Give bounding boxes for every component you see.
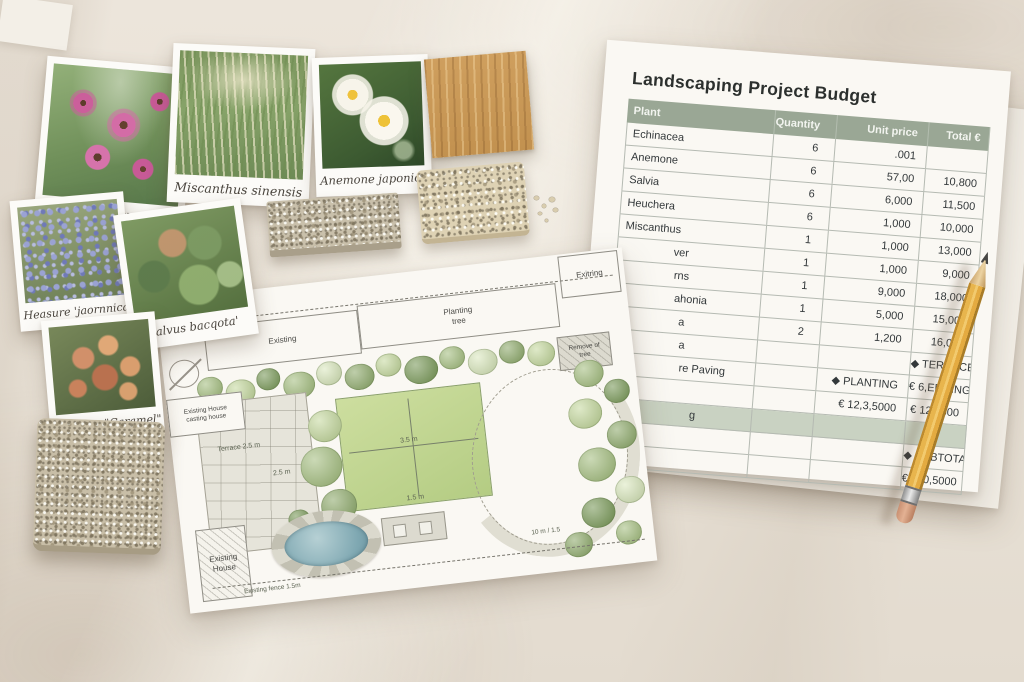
- planting-blob: [255, 367, 281, 392]
- exitring-box: Exitring: [557, 250, 621, 299]
- pencil-lead: [980, 251, 991, 265]
- structure-detail: [393, 524, 407, 538]
- planting-blob: [374, 352, 402, 378]
- plant-card-heasure: Heasure 'jaornnica: [10, 191, 135, 331]
- plant-card-miscanthus: Miscanthus sinensis: [167, 43, 316, 208]
- planting-blob: [498, 339, 526, 365]
- wood-sample: [424, 51, 534, 159]
- granite-cobble-sample: [33, 418, 166, 555]
- cell-quantity: [747, 455, 811, 482]
- gravel-sample: [416, 161, 530, 244]
- planting-blob: [343, 362, 376, 391]
- planting-blob: [315, 360, 344, 387]
- exitring-label: Exitring: [576, 268, 604, 281]
- planting-blob: [438, 345, 466, 371]
- haxtiera-photo: [48, 319, 155, 415]
- planting-tree-box: Planting tree: [357, 283, 561, 349]
- gravel-grain: [534, 196, 539, 200]
- structure-detail: [418, 521, 432, 535]
- paper-scrap: [0, 0, 73, 51]
- existing-area-label: Existing: [268, 334, 297, 347]
- gravel-grain: [545, 219, 548, 222]
- plant-card-anemone: Anemone japonica: [312, 54, 433, 197]
- gravel-grain: [542, 204, 546, 208]
- gravel-grain: [553, 208, 558, 212]
- anemone-photo: [319, 61, 425, 168]
- heasure-photo: [17, 199, 125, 303]
- planting-blob: [466, 347, 499, 376]
- gravel-grain: [549, 197, 555, 202]
- gravel-grain: [538, 212, 542, 215]
- moodboard-photo: { "budget_sheet": { "title": "Landscapin…: [0, 0, 1024, 682]
- existing-house-label: Existing House: [205, 551, 243, 575]
- garden-structure: [381, 511, 448, 546]
- pencil-eraser: [894, 501, 916, 525]
- planting-tree-label: Planting tree: [437, 304, 479, 328]
- stone-paver-sample: [266, 192, 402, 257]
- planting-blob: [403, 354, 440, 386]
- card-caption: Anemone japonica: [322, 165, 425, 193]
- miscanthus-photo: [175, 50, 308, 179]
- existing-house-note: Existing House casting house: [179, 404, 233, 426]
- remove-of-tree-label: Remove of tree: [567, 341, 603, 361]
- salvus-photo: [121, 206, 248, 323]
